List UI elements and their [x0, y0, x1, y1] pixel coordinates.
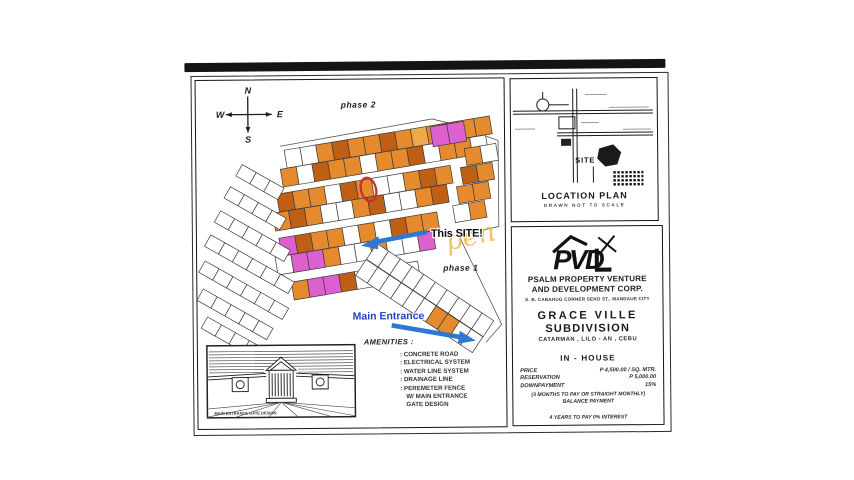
financing-note-3: 4 YEARS TO PAY 0% INTEREST — [513, 414, 663, 422]
compass-w: W — [216, 110, 226, 120]
mini-map-building — [561, 139, 571, 146]
flyer-frame: N W E S phase 2 phase 1 pen — [190, 72, 671, 436]
mini-map-site-label: SITE — [575, 156, 595, 165]
photo-background: N W E S phase 2 phase 1 pen — [0, 0, 854, 480]
mini-map-roads — [513, 88, 654, 183]
company-panel: PVD PSALM PROPERTY VENTURE AND DEVELOPME… — [511, 225, 665, 426]
map-lot — [434, 165, 453, 185]
location-plan-subtitle: DRAWN NOT TO SCALE — [512, 202, 658, 208]
map-lot — [472, 181, 491, 200]
map-lot — [474, 116, 493, 136]
financing-label: PRICE — [520, 368, 537, 376]
map-lot — [431, 184, 450, 204]
lot-strip — [460, 162, 494, 184]
site-map-panel: N W E S phase 2 phase 1 pen — [195, 77, 508, 430]
gate-design-svg: MAIN ENTRANCE GATE DESIGN — [206, 344, 357, 425]
mini-map-label-marks — [515, 94, 651, 130]
compass-icon: N W E S — [216, 85, 285, 145]
map-lot — [460, 165, 479, 184]
pvd-logo-svg: PVD — [544, 232, 630, 275]
financing-value: 15% — [645, 382, 656, 390]
gate-caption: MAIN ENTRANCE GATE DESIGN — [214, 410, 276, 416]
roundabout-icon — [537, 99, 549, 111]
company-address: S. B. CABAHUG CORNER SENO ST., MANDAUE C… — [512, 296, 662, 302]
map-lot — [453, 203, 472, 222]
logo-text: PVD — [553, 244, 605, 275]
map-lot — [476, 162, 495, 181]
financing-note-2: BALANCE PAYMENT — [513, 398, 663, 406]
company-name-line2: AND DEVELOPMENT CORP. — [512, 284, 662, 295]
gate-design-drawing: MAIN ENTRANCE GATE DESIGN — [206, 344, 357, 425]
lot-strip — [456, 181, 490, 203]
map-lot — [456, 184, 475, 203]
amenities-section: AMENITIES : : CONCRETE ROAD: ELECTRICAL … — [364, 336, 507, 410]
project-name-line2: SUBDIVISION — [513, 321, 663, 335]
cemetery-hatch — [613, 172, 643, 184]
scanned-flyer: N W E S phase 2 phase 1 pen — [184, 56, 669, 438]
amenities-list: : CONCRETE ROAD: ELECTRICAL SYSTEM: WATE… — [364, 350, 507, 410]
compass-n: N — [245, 86, 252, 96]
financing-rows: PRICEP 4,500.00 / SQ. MTR.RESERVATIONP 5… — [520, 367, 656, 390]
project-location: CATARMAN , LILO - AN , CEBU — [513, 336, 663, 343]
pvd-logo: PVD — [544, 232, 630, 275]
top-black-bar — [184, 59, 665, 72]
amenity-line: GATE DESIGN — [400, 401, 506, 410]
map-lot — [447, 121, 467, 144]
phase2-label: phase 2 — [340, 99, 376, 109]
entrance-annotation: Main Entrance — [353, 310, 425, 323]
financing-header: IN - HOUSE — [513, 353, 663, 363]
financing-label: DOWNPAYMENT — [520, 383, 564, 391]
site-annotation: This SITE! — [431, 228, 483, 240]
location-mini-map: SITE — [511, 78, 658, 191]
amenities-header: AMENITIES : — [364, 336, 506, 346]
location-plan-title: LOCATION PLAN — [512, 190, 658, 201]
map-lot — [464, 146, 483, 165]
map-lot — [480, 143, 499, 162]
lot-strip — [199, 261, 289, 320]
site-marker — [597, 144, 621, 166]
compass-e: E — [277, 109, 284, 119]
phase1-label: phase 1 — [442, 263, 478, 273]
financing-row: DOWNPAYMENT15% — [520, 382, 656, 391]
location-plan-panel: SITE LOCATION PLAN DRAWN NOT TO SCALE — [510, 77, 659, 222]
compass-s: S — [245, 135, 251, 145]
